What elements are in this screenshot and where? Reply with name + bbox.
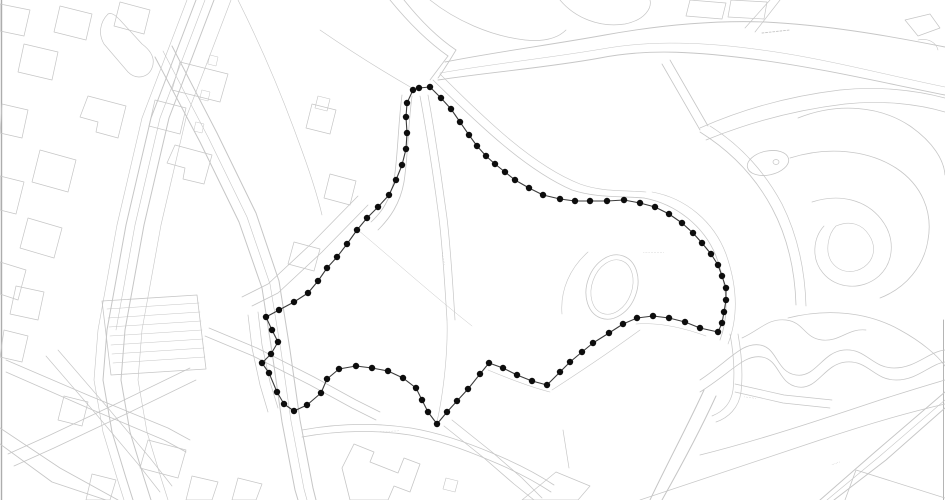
site-boundary-dot — [526, 185, 532, 191]
site-boundary-dot — [699, 240, 705, 246]
site-boundary-dot — [719, 273, 725, 279]
site-boundary-dot — [715, 329, 721, 335]
site-boundary-dot — [679, 220, 685, 226]
site-boundary-dot — [403, 146, 409, 152]
site-boundary-dot — [385, 368, 391, 374]
site-boundary-dot — [448, 106, 454, 112]
micro-label-center: ·············· — [643, 251, 664, 255]
site-boundary-dot — [557, 369, 563, 375]
site-boundary-dot — [637, 200, 643, 206]
site-boundary-dot — [315, 278, 321, 284]
site-plan-viewport: ········································… — [0, 0, 945, 500]
site-boundary-dot — [399, 162, 405, 168]
site-boundary-dot — [438, 95, 444, 101]
site-boundary-dot — [457, 119, 463, 125]
site-pond-oval-inner — [584, 254, 641, 320]
site-boundary-dot — [708, 251, 714, 257]
site-boundary-dot — [305, 290, 311, 296]
site-boundary-dot — [544, 382, 550, 388]
site-boundary-dot — [324, 265, 330, 271]
site-boundary-dot — [620, 321, 626, 327]
site-boundary-dot — [690, 230, 696, 236]
site-boundary-dot — [540, 192, 546, 198]
site-boundary-dot — [369, 365, 375, 371]
map-micro-labels: ········································… — [380, 251, 841, 467]
site-boundary-dot — [400, 375, 406, 381]
site-boundary-dot — [269, 327, 275, 333]
site-boundary-dot — [336, 366, 342, 372]
site-boundary-dot — [529, 378, 535, 384]
site-boundary-dot — [386, 192, 392, 198]
site-boundary-dot — [590, 340, 596, 346]
site-boundary-dot — [353, 363, 359, 369]
site-boundary-dot — [444, 409, 450, 415]
site-boundary-dot — [434, 421, 440, 427]
site-boundary-dot — [276, 307, 282, 313]
site-boundary-dot — [621, 197, 627, 203]
site-boundary-dot — [512, 177, 518, 183]
site-boundary-dot — [375, 204, 381, 210]
site-boundary-dot — [666, 211, 672, 217]
site-boundary-dot — [466, 132, 472, 138]
site-boundary-dot — [404, 100, 410, 106]
site-boundary-dot — [477, 371, 483, 377]
site-boundary-dot — [587, 198, 593, 204]
site-boundary-dot — [281, 401, 287, 407]
site-boundary-dot — [403, 114, 409, 120]
site-boundary-dot — [304, 402, 310, 408]
site-boundary-dot — [682, 319, 688, 325]
site-boundary-dot — [483, 153, 489, 159]
site-boundary-dot — [454, 398, 460, 404]
site-boundary-dot — [650, 313, 656, 319]
site-boundary-dot — [413, 385, 419, 391]
site-boundary-dot — [404, 130, 410, 136]
site-boundary-dot — [266, 370, 272, 376]
park-pond-outer — [745, 147, 791, 179]
site-boundary-dot — [579, 349, 585, 355]
site-boundary-dot — [514, 372, 520, 378]
site-boundary-dot — [259, 360, 265, 366]
micro-label-right-path: ········ — [744, 395, 757, 401]
site-boundary-dot — [334, 254, 340, 260]
site-pond-oval-outer — [577, 247, 647, 326]
site-boundary-dot — [324, 376, 330, 382]
site-boundary-dot — [275, 339, 281, 345]
site-boundary-dot — [492, 161, 498, 167]
site-boundary-dot — [719, 320, 725, 326]
site-boundary-dot — [364, 215, 370, 221]
site-boundary-dot — [425, 409, 431, 415]
micro-label-path-vertical: ········· — [440, 251, 446, 265]
site-boundary-dot — [557, 196, 563, 202]
site-boundary-dot — [274, 389, 280, 395]
site-boundary-dot — [721, 309, 727, 315]
site-boundary-dot — [291, 299, 297, 305]
site-boundary-dot — [465, 386, 471, 392]
site-boundary-dot — [715, 262, 721, 268]
site-boundary-dot — [291, 408, 297, 414]
site-boundary-dot — [567, 359, 573, 365]
site-boundary-dot — [427, 84, 433, 90]
park-pond-island — [773, 160, 779, 165]
site-boundary-dot — [263, 314, 269, 320]
site-boundary-dot — [318, 390, 324, 396]
site-boundary-dot — [393, 177, 399, 183]
site-boundary-dot — [634, 315, 640, 321]
site-boundary-dot — [606, 330, 612, 336]
site-boundary-dot — [344, 241, 350, 247]
map-linework — [0, 0, 945, 500]
site-plan-map: ········································… — [0, 0, 945, 500]
site-boundary-dot — [723, 297, 729, 303]
micro-label-bottom-right: ······ — [831, 460, 841, 467]
site-boundary-dot — [268, 351, 274, 357]
site-boundary-dot — [500, 365, 506, 371]
site-boundary-overlay — [259, 84, 729, 427]
site-boundary-dot — [502, 169, 508, 175]
site-boundary-dot — [604, 198, 610, 204]
site-boundary-dot — [419, 397, 425, 403]
map-water-features — [577, 147, 791, 327]
site-boundary-dot — [410, 87, 416, 93]
site-boundary-dot — [416, 85, 422, 91]
site-boundary-dot — [697, 325, 703, 331]
site-boundary-dot — [486, 360, 492, 366]
site-boundary-dot — [572, 198, 578, 204]
site-boundary-dot — [474, 143, 480, 149]
site-boundary-dot — [723, 285, 729, 291]
site-boundary-dot — [652, 204, 658, 210]
site-boundary-dot — [354, 227, 360, 233]
site-boundary-dot — [666, 315, 672, 321]
